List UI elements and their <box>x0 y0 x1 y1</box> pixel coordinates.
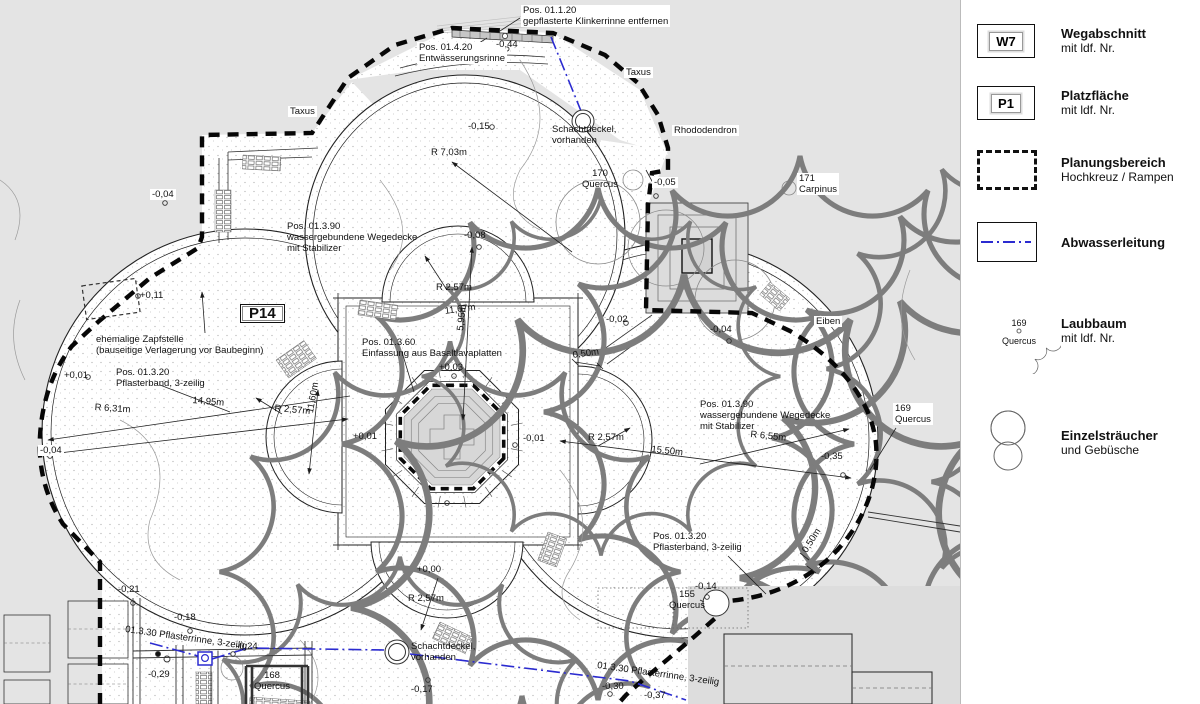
legend-sub: mit ldf. Nr. <box>1061 331 1127 346</box>
platzflaeche-symbol-label: P1 <box>991 94 1021 113</box>
laubbaum-tag-species: Quercus <box>1002 336 1037 346</box>
legend-panel: W7 Wegabschnittmit ldf. Nr. P1 Platzfläc… <box>960 0 1200 704</box>
legend-item-platzflaeche: P1 Platzflächemit ldf. Nr. <box>977 86 1200 120</box>
legend-title: Abwasserleitung <box>1061 235 1165 250</box>
plan-drawing: Pos. 01.1.20 gepflasterte Klinkerrinne e… <box>0 0 960 704</box>
legend-item-laubbaum: 169 Quercus Laubbaummit ldf. Nr. <box>977 288 1200 374</box>
legend-title: Platzfläche <box>1061 88 1129 103</box>
planungsbereich-dashed-icon <box>977 150 1037 190</box>
legend-sub: mit ldf. Nr. <box>1061 103 1129 118</box>
wegabschnitt-symbol-label: W7 <box>989 32 1023 51</box>
legend-title: Planungsbereich <box>1061 155 1174 170</box>
wegabschnitt-symbol-icon: W7 <box>977 24 1035 58</box>
legend-sub: und Gebüsche <box>1061 443 1158 458</box>
legend-sub: Hochkreuz / Rampen <box>1061 170 1174 185</box>
site-plan-svg <box>0 0 960 704</box>
legend-item-einzelstraeucher: Einzelsträucherund Gebüsche <box>977 402 1200 484</box>
legend-item-planungsbereich: PlanungsbereichHochkreuz / Rampen <box>977 150 1200 190</box>
laubbaum-tag-number: 169 <box>1011 318 1026 328</box>
legend-title: Laubbaum <box>1061 316 1127 331</box>
site-plan-page: Pos. 01.1.20 gepflasterte Klinkerrinne e… <box>0 0 1200 704</box>
legend-title: Einzelsträucher <box>1061 428 1158 443</box>
laubbaum-tree-icon: 169 Quercus <box>977 288 1061 374</box>
platzflaeche-symbol-icon: P1 <box>977 86 1035 120</box>
legend-item-wegabschnitt: W7 Wegabschnittmit ldf. Nr. <box>977 24 1200 58</box>
einzelstraeucher-shrub-icon <box>977 402 1039 484</box>
legend-sub: mit ldf. Nr. <box>1061 41 1146 56</box>
abwasserleitung-line-icon <box>977 222 1037 262</box>
legend-item-abwasserleitung: Abwasserleitung <box>977 222 1200 262</box>
legend-title: Wegabschnitt <box>1061 26 1146 41</box>
